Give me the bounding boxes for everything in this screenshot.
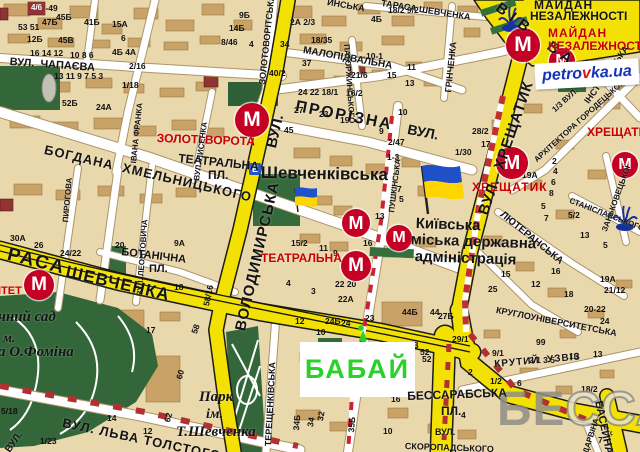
building-number: 52 bbox=[420, 348, 429, 357]
building-number: 29/1 bbox=[452, 335, 469, 344]
building-number: 19А bbox=[600, 275, 616, 284]
building-number: 5 bbox=[399, 195, 404, 204]
building-number: 5 bbox=[541, 202, 546, 211]
building-number: 6 bbox=[121, 34, 126, 43]
building-number: 17 bbox=[146, 326, 155, 335]
building-number: 15 bbox=[387, 71, 396, 80]
building-number: 2/47 bbox=[388, 138, 405, 147]
building-number: 28/2 bbox=[472, 127, 489, 136]
building-number: 17 bbox=[481, 140, 490, 149]
metro-symbol: М bbox=[349, 213, 364, 234]
building-number: 2 bbox=[552, 157, 557, 166]
building-number: 62 bbox=[163, 412, 174, 423]
building-number: 8/46 bbox=[221, 38, 238, 47]
label-bessarabska-line2: ПЛ. bbox=[441, 405, 461, 417]
label-park-shevchenka-line1: Парк bbox=[199, 390, 233, 405]
label-botsad-line2: м. bbox=[3, 331, 15, 344]
label-shevchenkivska: Шевченківська bbox=[261, 164, 388, 183]
building-number: 1/30 bbox=[455, 148, 472, 157]
building-number: 2А 2/3 bbox=[290, 18, 315, 27]
building-number: 4Б bbox=[371, 15, 382, 24]
building-number: 1/23 bbox=[40, 437, 57, 446]
metro-station-marker: М bbox=[235, 103, 269, 137]
building-number: 40/2 bbox=[269, 69, 286, 78]
building-number: 18 bbox=[174, 283, 183, 292]
building-number: 32 bbox=[316, 411, 326, 422]
building-number: 18 bbox=[564, 290, 573, 299]
metro-station-marker: М bbox=[342, 209, 370, 237]
building-number: 16 bbox=[551, 267, 560, 276]
landmark-badge: 4/6 bbox=[28, 2, 45, 14]
kyiv-city-map[interactable]: petrovka.ua БАБАЙ БЕССА Е ВУЛ. ЧАПАЄВАВІ… bbox=[0, 0, 640, 452]
metro-symbol: М bbox=[243, 108, 261, 132]
label-maidan-line2: НЕЗАЛЕЖНОСТІ bbox=[530, 10, 627, 22]
building-number: 2/16 bbox=[129, 62, 146, 71]
metro-station-marker: М bbox=[341, 251, 371, 281]
building-number: 4 bbox=[461, 411, 466, 420]
building-number: 15А bbox=[112, 20, 128, 29]
building-number: 10 bbox=[316, 328, 325, 337]
building-number: 13 bbox=[375, 212, 384, 221]
building-number: 24 bbox=[341, 319, 350, 328]
building-number: 4 bbox=[553, 167, 558, 176]
label-botanichna-line2: ПЛ. bbox=[149, 264, 168, 275]
babai-marker[interactable]: БАБАЙ bbox=[300, 342, 415, 397]
label-bessarabska-line1: БЕССАРАБСЬКА bbox=[407, 387, 507, 402]
building-number: 41Б bbox=[84, 18, 100, 27]
building-number: 13 11 9 7 5 3 bbox=[54, 72, 103, 81]
building-number: 10 bbox=[383, 427, 392, 436]
building-number: 27Б bbox=[438, 312, 454, 321]
building-number: 13 bbox=[405, 79, 414, 88]
building-number: 99 bbox=[536, 338, 545, 347]
building-number: 24Б bbox=[325, 317, 341, 326]
street-skoropadskoho-2: СКОРОПАДСЬКОГО bbox=[405, 442, 494, 452]
building-number: 16 14 12 bbox=[30, 49, 63, 58]
building-number: 25 bbox=[488, 285, 497, 294]
building-number: 13 bbox=[593, 350, 602, 359]
metro-label-khreshchatyk-2: ХРЕЩАТИК bbox=[587, 126, 640, 138]
building-number: 60 bbox=[175, 369, 186, 380]
building-number: 4Б 4А bbox=[112, 48, 136, 57]
building-number: 20-22 bbox=[584, 305, 606, 314]
building-number: 34 bbox=[280, 40, 289, 49]
building-number: 45Б bbox=[56, 13, 72, 22]
building-number: 7 bbox=[544, 214, 549, 223]
building-number: 9А bbox=[174, 239, 185, 248]
building-number: 10 bbox=[398, 108, 407, 117]
building-number: 5/2 bbox=[568, 211, 580, 220]
metro-label-maidan-line1: МАЙДАН bbox=[548, 27, 607, 39]
building-number: 24 bbox=[600, 317, 609, 326]
petrovka-logo-text: petro bbox=[542, 65, 583, 85]
building-number: 9Б bbox=[239, 11, 250, 20]
building-number: 5 bbox=[603, 241, 608, 250]
building-number: 15 bbox=[501, 270, 510, 279]
building-number: 4 bbox=[249, 40, 254, 49]
building-number: 30А bbox=[10, 234, 26, 243]
building-number: 21/6 bbox=[351, 71, 368, 80]
petrovka-logo-text-2: ka.ua bbox=[591, 63, 633, 83]
petrovka-logo[interactable]: petrovka.ua bbox=[534, 58, 639, 89]
building-number: 45 bbox=[284, 126, 293, 135]
building-number: 12 bbox=[295, 317, 304, 326]
metro-symbol: М bbox=[348, 255, 364, 277]
label-botsad-line3: а О.Фоміна bbox=[0, 345, 74, 360]
building-number: 26 bbox=[34, 241, 43, 250]
building-number: 53 51 bbox=[18, 23, 39, 32]
building-number: 45В bbox=[58, 36, 74, 45]
building-number: 15/2 bbox=[291, 239, 308, 248]
building-number: 2 bbox=[468, 368, 473, 377]
metro-label-teatralna: ТЕАТРАЛЬНА bbox=[261, 252, 342, 264]
metro-station-marker: М bbox=[386, 225, 412, 251]
building-number: 22 20 bbox=[335, 280, 356, 289]
building-number: 14Б bbox=[229, 24, 245, 33]
building-number: 13 bbox=[580, 231, 589, 240]
building-number: 9/1 bbox=[492, 349, 504, 358]
building-number: 24 22 18/1 bbox=[298, 88, 338, 97]
building-number: 37 bbox=[302, 59, 311, 68]
metro-symbol: М bbox=[31, 274, 47, 296]
building-number: 8 bbox=[549, 189, 554, 198]
building-number: 4 bbox=[286, 279, 291, 288]
metro-label-universytet-frag: ІТЕТ bbox=[0, 286, 22, 297]
building-number: 24/22 bbox=[60, 249, 81, 258]
label-kmda-line3: адміністрація bbox=[414, 249, 516, 268]
label-park-shevchenka-line2: ім. bbox=[206, 408, 223, 422]
building-number: 6 bbox=[551, 178, 556, 187]
building-number: 3 bbox=[311, 287, 316, 296]
building-number: 1/18 bbox=[122, 81, 139, 90]
building-number: 23 bbox=[365, 314, 374, 323]
building-number: 44Б bbox=[402, 308, 418, 317]
building-number: 11 bbox=[407, 63, 416, 72]
map-watermark: БЕССА bbox=[497, 386, 640, 434]
building-number: 12 bbox=[531, 280, 540, 289]
building-number: 5/18 bbox=[1, 407, 18, 416]
babai-marker-label: БАБАЙ bbox=[305, 354, 410, 385]
building-number: 35Б bbox=[347, 416, 357, 432]
building-number: 14 bbox=[107, 414, 116, 423]
building-number: 18/35 bbox=[311, 36, 332, 45]
building-number: 34Б bbox=[292, 414, 302, 430]
building-number: 10 8 6 bbox=[70, 51, 94, 60]
metro-symbol: М bbox=[392, 229, 405, 247]
building-number: 21/12 bbox=[604, 286, 625, 295]
street-skoropadskoho-1: ВУЛ. bbox=[435, 428, 455, 437]
building-number: 52Б bbox=[62, 99, 78, 108]
label-park-shevchenka-line3: Т.Шевченка bbox=[176, 425, 256, 440]
building-number: 24А bbox=[96, 103, 112, 112]
label-botsad-line1: чний сад bbox=[0, 310, 56, 325]
building-number: 22А bbox=[338, 295, 354, 304]
building-number: 16 bbox=[363, 239, 372, 248]
building-number: 12Б bbox=[27, 35, 43, 44]
